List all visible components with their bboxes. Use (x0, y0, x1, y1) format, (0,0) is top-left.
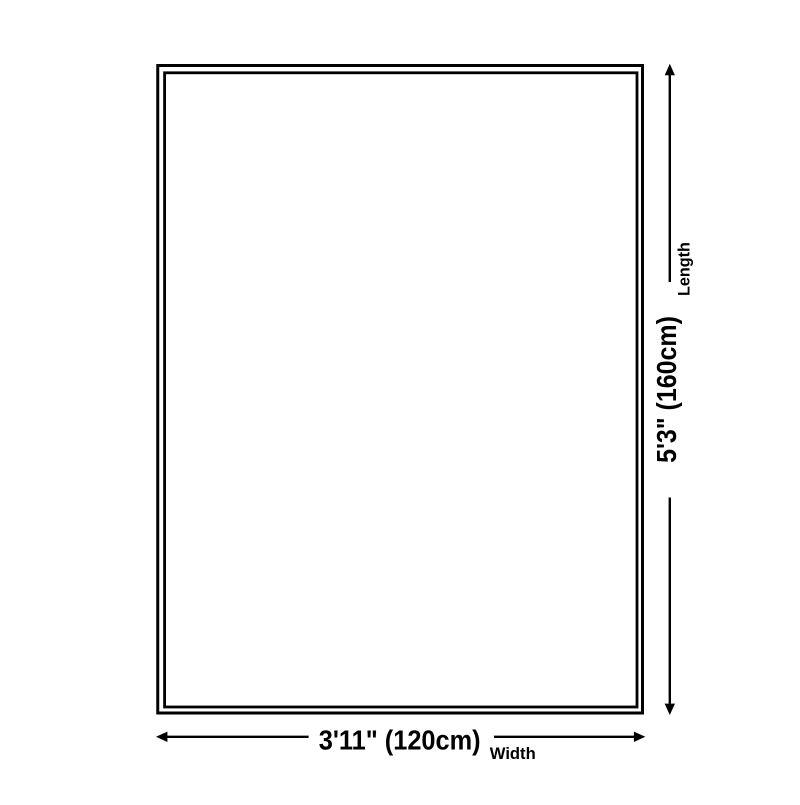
svg-text:Length: Length (676, 242, 694, 296)
svg-text:3'11" (120cm): 3'11" (120cm) (319, 725, 481, 756)
svg-text:5'3" (160cm): 5'3" (160cm) (651, 316, 683, 463)
svg-text:Width: Width (490, 744, 536, 763)
